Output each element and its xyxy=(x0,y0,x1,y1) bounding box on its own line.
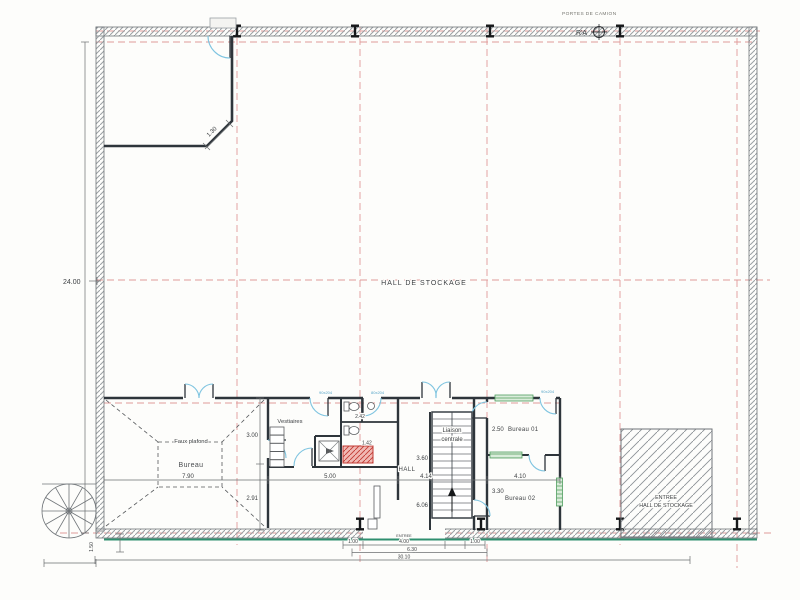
dim-bureau02-h: 3.30 xyxy=(492,489,504,495)
toilet-icon xyxy=(344,426,359,435)
hall-door-panel xyxy=(374,486,380,518)
window-panel xyxy=(495,395,533,401)
bureaux-rooms: Bureau 01 Bureau 02 xyxy=(505,427,539,502)
dim-total-height: 24.00 xyxy=(63,279,81,286)
lockers xyxy=(270,427,284,467)
dim-stair-2: 4.14 xyxy=(420,474,432,480)
dim-ent-right: 1.00 xyxy=(470,539,480,545)
bureau01-label: Bureau 01 xyxy=(508,427,539,433)
door-swing-icon xyxy=(199,384,213,398)
door-swing-icon xyxy=(185,384,199,398)
dim-bureau-width: 7.90 xyxy=(182,474,194,480)
window-panel xyxy=(490,452,522,458)
entree-label-2: HALL DE STOCKAGE xyxy=(639,503,693,509)
survey-marker-label: R'A xyxy=(576,30,587,37)
dim-wc: 2.42 xyxy=(355,414,365,420)
bureau-label: Bureau xyxy=(179,462,204,469)
office-block-walls xyxy=(104,398,560,530)
window-panel xyxy=(557,478,563,506)
scanned-floor-plan-page: R'A PORTES DE CAMION 1.30 HALL DE STOCKA… xyxy=(0,0,800,600)
dim-bureau01-h: 2.50 xyxy=(492,427,504,433)
door-lintel xyxy=(210,18,236,28)
liaison-label-1: Liaison xyxy=(442,428,461,434)
door-swing-icon xyxy=(294,448,312,466)
entree-zone: ENTREE HALL DE STOCKAGE xyxy=(621,429,712,537)
compass-target-icon xyxy=(591,24,607,40)
red-highlight-zone xyxy=(343,446,373,463)
dim-vestiaires-width: 5.00 xyxy=(324,474,336,480)
hall-de-stockage-label: HALL DE STOCKAGE xyxy=(381,280,467,287)
dim-total-width: 30.10 xyxy=(398,555,411,561)
door-swing-icon xyxy=(208,36,230,58)
door-swing-icon xyxy=(310,398,328,416)
dim-red-zone: 1.42 xyxy=(362,441,372,447)
faux-plafond-label: Faux plafond xyxy=(174,439,208,445)
dim-bureau-h1: 3.00 xyxy=(246,433,258,439)
hall-label: HALL xyxy=(398,467,415,473)
door-swing-icon xyxy=(422,382,436,398)
top-left-room: 1.30 xyxy=(104,18,236,150)
door-size-label: 90x204 xyxy=(541,389,555,394)
steel-column-icon xyxy=(356,518,364,531)
door-size-label: 80x204 xyxy=(371,390,385,395)
dim-ent-left: 1.00 xyxy=(348,539,358,545)
dimensions: 24.00 7.90 5.00 4.14 4.10 3.00 2.91 3.60… xyxy=(44,42,690,567)
door-swing-icon xyxy=(540,398,556,414)
door-swing-icon xyxy=(529,455,545,471)
dim-stair-1: 3.60 xyxy=(416,456,428,462)
bureau02-label: Bureau 02 xyxy=(505,496,536,502)
liaison-label-2: centrale xyxy=(441,437,463,443)
dim-stair-out: 1.50 xyxy=(89,542,95,552)
spiral-staircase-icon xyxy=(42,484,96,538)
dim-ent-total: 6.30 xyxy=(407,547,417,553)
entree-door-label: ENTREE xyxy=(396,534,412,538)
dim-stair-3: 6.06 xyxy=(416,503,428,509)
shower-icon xyxy=(319,441,339,461)
steel-column-icon xyxy=(733,518,741,531)
bureau-room: Faux plafond Bureau xyxy=(106,400,264,526)
floor-plan-drawing: R'A PORTES DE CAMION 1.30 HALL DE STOCKA… xyxy=(0,0,800,600)
dim-bureau-h2: 2.91 xyxy=(246,496,258,502)
steel-column-icon xyxy=(477,518,485,531)
vestiaires-label: Vestiaires xyxy=(277,419,302,425)
dim-bureaux-width: 4.10 xyxy=(514,474,526,480)
washbasin-icon xyxy=(368,403,375,410)
dim-ent-width: 4.00 xyxy=(399,539,409,545)
top-annotation: PORTES DE CAMION xyxy=(562,11,617,17)
toilet-icon xyxy=(344,402,359,411)
door-size-label: 90x204 xyxy=(319,390,333,395)
entree-label-1: ENTREE xyxy=(655,495,677,501)
entrance-door-leaf xyxy=(368,519,377,529)
door-swing-icon xyxy=(436,382,450,398)
